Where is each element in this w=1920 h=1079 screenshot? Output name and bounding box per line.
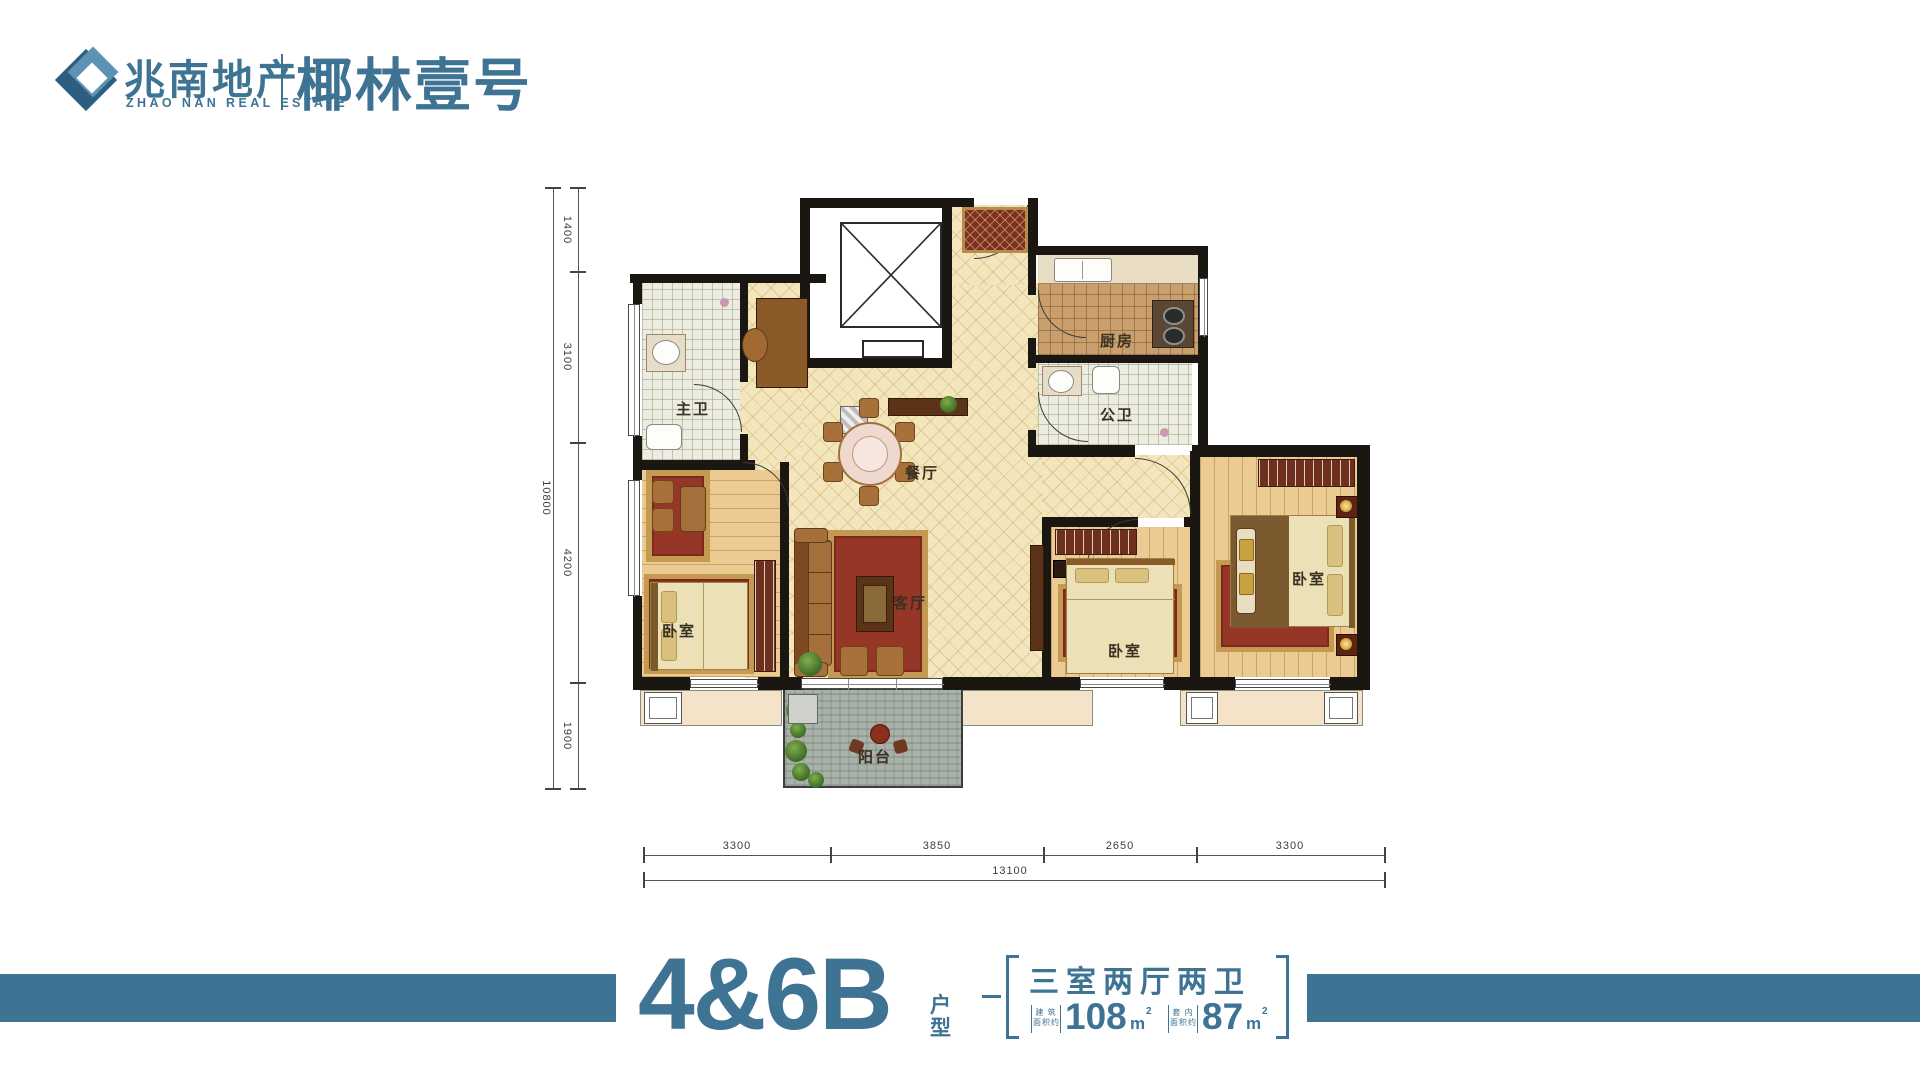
- room-label-living: 客厅: [893, 592, 927, 613]
- area-label-built: 建 筑 面积约: [1031, 1005, 1061, 1033]
- coffee-table: [856, 576, 894, 632]
- area-sup-inner: 2: [1262, 1006, 1268, 1017]
- bath-accessory: [1160, 428, 1169, 437]
- balcony-sliding-door: [801, 678, 943, 689]
- elevator-car: [840, 222, 942, 328]
- balcony-plant: [808, 772, 824, 788]
- room-label-balcony: 阳台: [858, 746, 892, 767]
- brand-logo: [58, 50, 122, 114]
- dim-bottom-seg3: 2650: [1090, 840, 1150, 852]
- area-value-inner: 87: [1202, 996, 1243, 1038]
- dim-left-total: 10800: [540, 468, 552, 528]
- dining-table: [838, 422, 902, 486]
- room-label-dining: 餐厅: [905, 462, 939, 483]
- elevator-door: [862, 340, 924, 358]
- area-sup-built: 2: [1146, 1006, 1152, 1017]
- area-value-built: 108: [1065, 996, 1127, 1038]
- room-label-bedroom-mid: 卧室: [1108, 640, 1142, 661]
- balcony-wash-basin: [788, 694, 818, 724]
- bath-accessory: [720, 298, 729, 307]
- lamp-icon: [1340, 500, 1352, 512]
- unit-code: 4&6B: [638, 936, 891, 1053]
- room-label-public-bath: 公卫: [1100, 404, 1134, 425]
- footer-bar-left: [0, 974, 616, 1022]
- elevator-x-icon: [842, 224, 940, 326]
- bedroom-armchair: [652, 480, 674, 504]
- balcony-plant: [785, 740, 807, 762]
- sink-icon: [1048, 370, 1074, 393]
- living-plant: [798, 652, 822, 676]
- bedroom-settee: [1236, 528, 1256, 614]
- lamp-icon: [1340, 638, 1352, 650]
- layout-text: 三室两厅两卫: [1029, 957, 1251, 1001]
- bracket-open: [1006, 955, 1019, 1039]
- dining-chair: [859, 398, 879, 418]
- desk-chair: [742, 328, 768, 362]
- window: [1235, 679, 1330, 688]
- bracket-close: [1276, 955, 1289, 1039]
- window: [1199, 278, 1208, 336]
- tv-cabinet: [1030, 545, 1044, 651]
- sofa-seat: [808, 540, 832, 666]
- room-label-bedroom-right: 卧室: [1292, 568, 1326, 589]
- wardrobe: [754, 560, 776, 672]
- ac-platform: [1324, 692, 1358, 724]
- toilet-icon: [646, 424, 682, 450]
- plinth-mid: [945, 690, 1093, 726]
- sofa-armrest: [794, 528, 828, 543]
- sink-icon: [652, 340, 680, 365]
- window: [1080, 679, 1164, 688]
- toilet-icon: [1092, 366, 1120, 394]
- floorplan-flyer: 兆南地产 ZHAO NAN REAL ESTATE 椰林壹号 10800 140…: [0, 0, 1920, 1079]
- area-label-inner: 套 内 面积约: [1168, 1005, 1198, 1033]
- area-unit-inner: m: [1246, 1014, 1261, 1034]
- dim-left-seg2: 3100: [561, 327, 573, 387]
- dim-bottom-seg4: 3300: [1260, 840, 1320, 852]
- kitchen-sink-icon: [1054, 258, 1112, 282]
- armchair: [840, 646, 868, 676]
- dim-left-seg4: 1900: [561, 706, 573, 766]
- footer-dash-left: [982, 995, 1001, 998]
- dining-chair: [859, 486, 879, 506]
- project-name: 椰林壹号: [296, 40, 532, 122]
- dining-chair: [823, 422, 843, 442]
- wardrobe: [1258, 459, 1355, 487]
- room-label-kitchen: 厨房: [1100, 330, 1134, 351]
- window: [628, 480, 640, 596]
- balcony-table: [870, 724, 890, 744]
- dim-bottom-seg2: 3850: [907, 840, 967, 852]
- area-unit-built: m: [1130, 1014, 1145, 1034]
- dim-bottom-total: 13100: [980, 865, 1040, 877]
- window: [690, 679, 758, 688]
- dim-left-seg3: 4200: [561, 533, 573, 593]
- armchair: [876, 646, 904, 676]
- bedroom-armchair: [652, 508, 674, 532]
- entry-doormat: [962, 207, 1028, 253]
- dim-left-seg1: 1400: [561, 200, 573, 260]
- window: [628, 304, 640, 436]
- footer-bar-right: [1307, 974, 1920, 1022]
- wardrobe: [1055, 529, 1137, 555]
- stove-icon: [1152, 300, 1194, 348]
- bedroom-loveseat: [680, 486, 706, 532]
- brand-divider: [281, 54, 283, 110]
- ac-platform: [644, 692, 682, 724]
- ac-platform: [1186, 692, 1218, 724]
- room-label-master-bath: 主卫: [676, 398, 710, 419]
- sideboard-plant: [940, 396, 957, 413]
- unit-type: 户型: [930, 994, 952, 1040]
- room-label-bedroom-left: 卧室: [662, 620, 696, 641]
- balcony-plant: [790, 722, 806, 738]
- dim-bottom-seg1: 3300: [707, 840, 767, 852]
